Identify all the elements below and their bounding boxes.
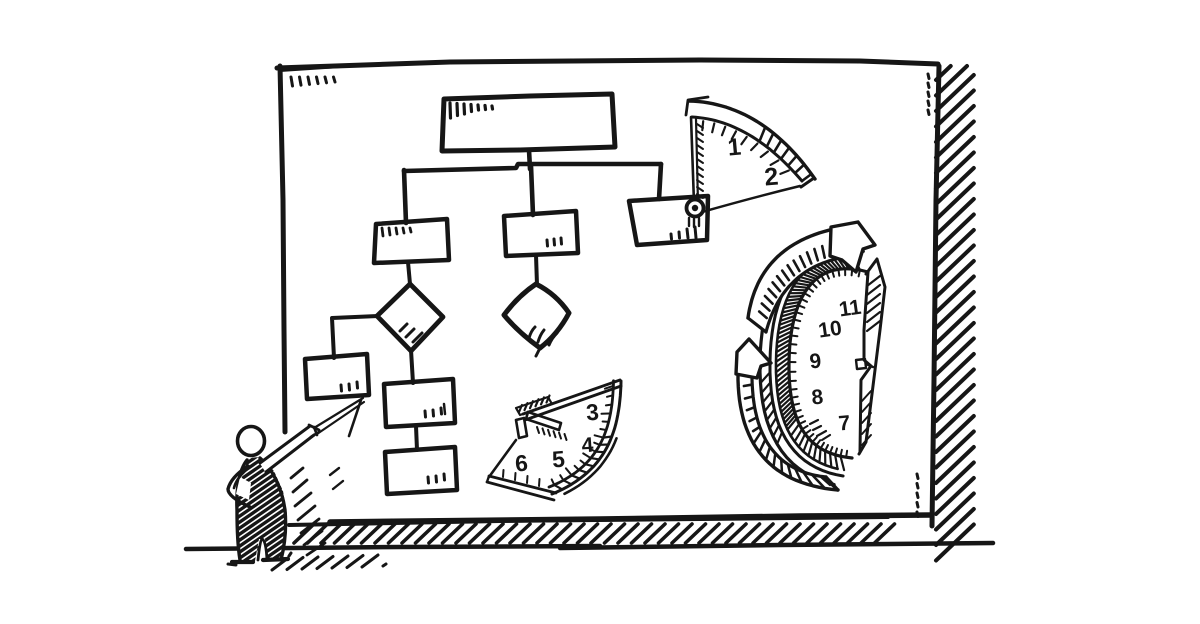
svg-text:10: 10 bbox=[817, 317, 843, 343]
svg-text:6: 6 bbox=[514, 450, 529, 477]
svg-text:7: 7 bbox=[838, 412, 852, 436]
svg-text:1: 1 bbox=[727, 133, 743, 161]
svg-text:4: 4 bbox=[581, 434, 595, 458]
svg-text:3: 3 bbox=[585, 399, 600, 426]
svg-text:9: 9 bbox=[809, 350, 823, 374]
svg-text:2: 2 bbox=[763, 162, 779, 191]
svg-text:11: 11 bbox=[838, 296, 864, 322]
svg-text:8: 8 bbox=[811, 386, 825, 410]
svg-text:5: 5 bbox=[551, 446, 566, 473]
